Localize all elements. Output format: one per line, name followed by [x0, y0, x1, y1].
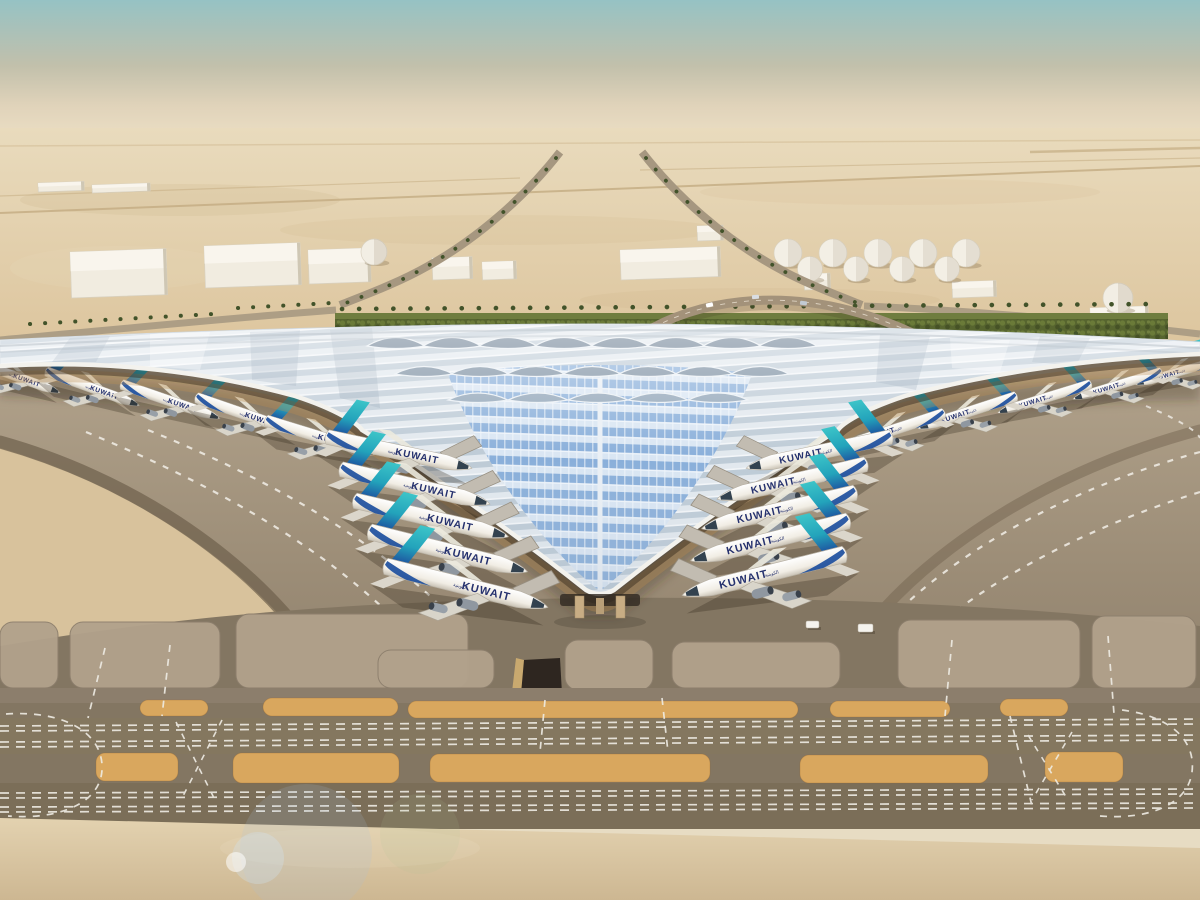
taxiway-band-1 [0, 718, 1200, 754]
stand-slab [565, 640, 653, 690]
aerial-rendering: الكويتية KUWAIT [0, 0, 1200, 900]
building-roof-face [204, 243, 301, 264]
sand-island [140, 700, 208, 716]
sand-island [800, 755, 988, 783]
shrub-row [335, 313, 1168, 320]
tip-column [575, 596, 584, 618]
scene-svg: الكويتية KUWAIT [0, 0, 1200, 900]
sand-island [263, 698, 398, 716]
foreground-sand [0, 818, 1200, 900]
building-shade [81, 181, 84, 190]
stand-slab [378, 650, 494, 688]
sand-island [830, 701, 950, 717]
building-shade [827, 273, 831, 289]
service-vehicle [806, 621, 819, 628]
stand-slab [1092, 616, 1196, 688]
sky [0, 0, 1200, 132]
sand-island [96, 753, 178, 781]
car [752, 295, 759, 299]
stand-slab [70, 622, 220, 688]
building-roof-face [482, 261, 516, 270]
sand-island [408, 701, 798, 718]
building-shade [513, 261, 517, 279]
tip-column [596, 598, 604, 614]
sand-island [1000, 699, 1068, 716]
sand-island [233, 753, 399, 783]
stand-slab [0, 622, 58, 688]
stand-slab [672, 642, 840, 688]
building-shade [147, 183, 150, 191]
tip-column [616, 596, 625, 618]
building-shade [993, 280, 997, 296]
sand-island [430, 754, 710, 782]
stand-slab [898, 620, 1080, 688]
building-roof-face [70, 249, 167, 272]
service-vehicle [858, 624, 873, 632]
